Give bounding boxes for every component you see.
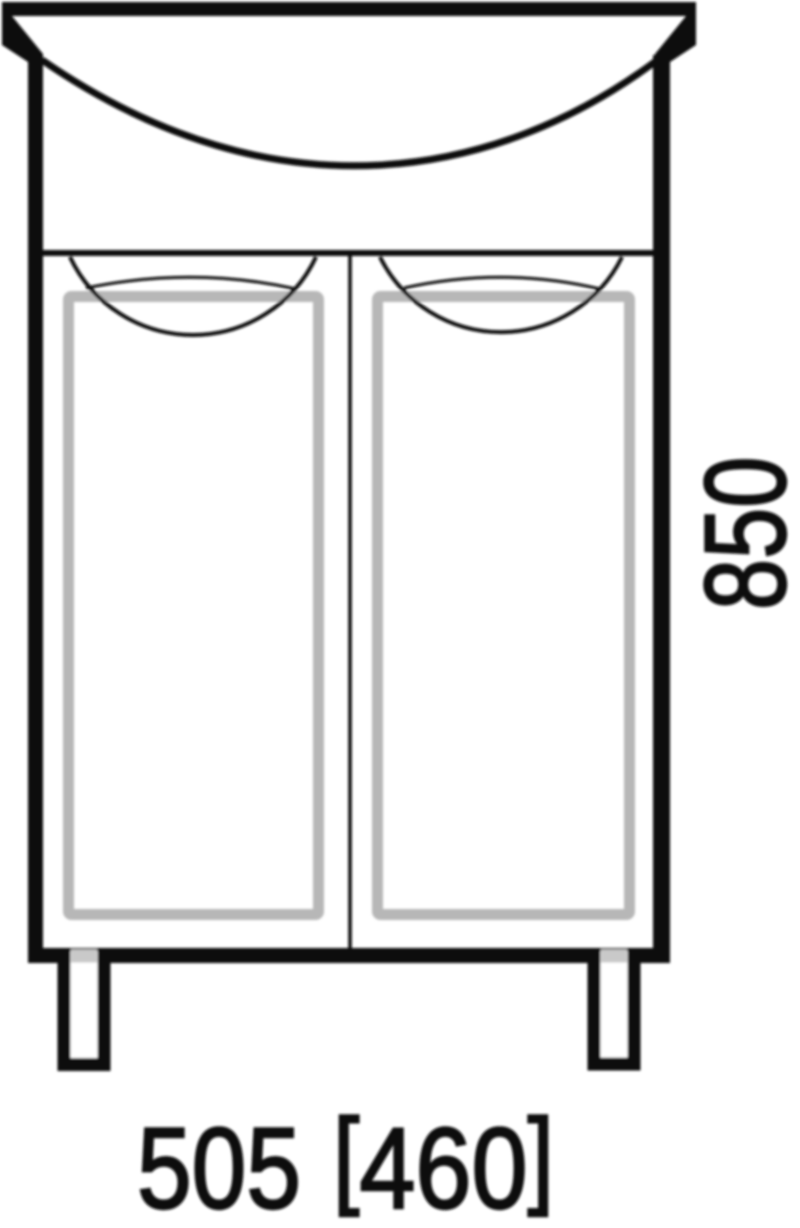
svg-text:850: 850 — [682, 457, 800, 610]
svg-text:[460]: [460] — [333, 1096, 554, 1228]
svg-text:505: 505 — [137, 1104, 301, 1228]
